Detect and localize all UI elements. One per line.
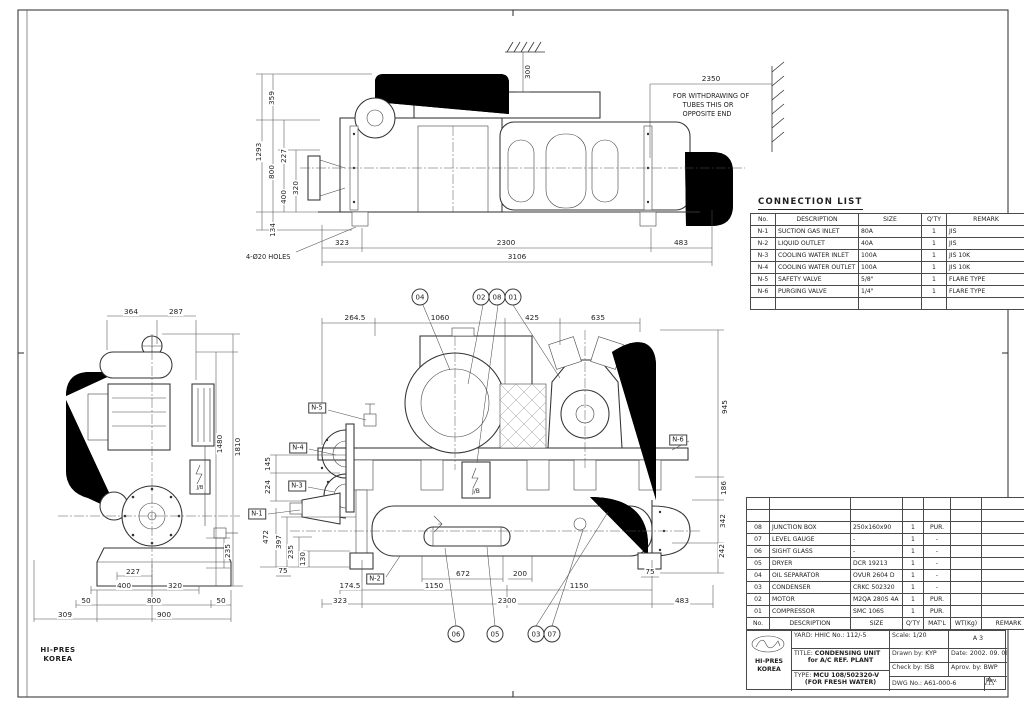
table-cell: 1 [903, 546, 924, 558]
date-value: 2002. 09. 09 [970, 650, 1007, 657]
table-cell: 01 [747, 606, 770, 618]
table-cell: - [851, 546, 903, 558]
table-cell: JIS [947, 238, 1024, 250]
drawn-value: KYP [925, 650, 936, 657]
table-cell: 06 [747, 546, 770, 558]
company-stamp-line2: KOREA [40, 655, 75, 664]
ceiling-hatch-icon [505, 42, 545, 52]
table-cell [951, 546, 982, 558]
logo-cell: HI-PRES KOREA [747, 631, 791, 691]
junction-box-label-side: J/B [196, 485, 205, 491]
table-cell: REMARK [982, 618, 1024, 630]
table-cell: M2QA 280S 4A [851, 594, 903, 606]
table-cell: DESCRIPTION [776, 214, 859, 226]
table-cell [851, 510, 903, 522]
title-block: HI-PRES KOREA YARD: HHIC No.: 112/-5 TIT… [746, 630, 1006, 690]
drawing-sheet: 1293359800227400320134300235032323004833… [0, 0, 1024, 707]
rev-triangle-icon [985, 677, 994, 685]
table-cell: - [851, 534, 903, 546]
table-cell [947, 298, 1024, 310]
dwg-no-label: DWG No.: [892, 680, 922, 687]
table-cell: OIL SEPARATOR [770, 570, 851, 582]
table-cell: PUR. [924, 522, 951, 534]
table-cell: FLARE TYPE [947, 286, 1024, 298]
yard-cell: YARD: HHIC No.: 112/-5 [791, 631, 889, 648]
date-label: Date: [951, 650, 968, 657]
scale-cell: Scale: 1/20 [889, 631, 948, 648]
sheet-size-cell: A 3 [948, 631, 1007, 648]
front-view [290, 328, 700, 569]
scale-value: 1/20 [913, 632, 927, 639]
yard-value: HHIC No.: 112/-5 [815, 632, 867, 639]
table-cell [982, 534, 1024, 546]
check-cell: Check by: ISB [889, 662, 948, 676]
date-cell: Date: 2002. 09. 09 [948, 648, 1007, 662]
dwg-no-value: A61-000-6 [924, 680, 956, 687]
table-cell [982, 558, 1024, 570]
approve-value: BWP [984, 664, 998, 671]
company-stamp: HI-PRES KOREA [40, 646, 75, 664]
table-row: N-5SAFETY VALVE5/8"1FLARE TYPE [751, 274, 1024, 286]
table-row: N-2LIQUID OUTLET40A1JIS [751, 238, 1024, 250]
yard-label: YARD: [794, 632, 813, 639]
drawing-title-line2: for A/C REF. PLANT [794, 657, 887, 664]
table-cell: FLARE TYPE [947, 274, 1024, 286]
table-cell: No. [751, 214, 776, 226]
table-cell: OVUR 2604 D [851, 570, 903, 582]
table-cell: 1 [922, 250, 947, 262]
scale-label: Scale: [892, 632, 911, 639]
table-cell [982, 510, 1024, 522]
table-cell: N-4 [751, 262, 776, 274]
table-cell: CRKC 502320 [851, 582, 903, 594]
table-cell [903, 498, 924, 510]
table-row: N-1SUCTION GAS INLET80A1JIS [751, 226, 1024, 238]
table-row: 05DRYERDCR 192131- [747, 558, 1024, 570]
table-cell: MAT'L [924, 618, 951, 630]
table-cell: SIZE [851, 618, 903, 630]
table-cell [922, 298, 947, 310]
table-cell: 1/4" [859, 286, 922, 298]
table-cell: COMPRESSOR [770, 606, 851, 618]
table-cell: N-3 [751, 250, 776, 262]
table-cell: 07 [747, 534, 770, 546]
table-cell [951, 522, 982, 534]
table-cell [859, 298, 922, 310]
table-cell: 80A [859, 226, 922, 238]
table-row [747, 498, 1024, 510]
table-cell: 1 [922, 226, 947, 238]
table-cell: SMC 106S [851, 606, 903, 618]
table-cell: 1 [903, 594, 924, 606]
table-cell [951, 594, 982, 606]
table-cell: DESCRIPTION [770, 618, 851, 630]
table-cell: 04 [747, 570, 770, 582]
approve-cell: Aprov. by: BWP [948, 662, 1007, 676]
table-cell: Q'TY [922, 214, 947, 226]
wall-hatch-icon [772, 62, 784, 152]
table-cell: COOLING WATER OUTLET [776, 262, 859, 274]
drawing-title-line1: CONDENSING UNIT [815, 650, 880, 657]
connection-list-table: No.DESCRIPTIONSIZEQ'TYREMARKN-1SUCTION G… [750, 213, 1024, 310]
table-row: 08JUNCTION BOX250x160x901PUR. [747, 522, 1024, 534]
holes-note: 4-Ø20 HOLES [246, 253, 290, 261]
table-cell [951, 534, 982, 546]
table-cell: REMARK [947, 214, 1024, 226]
table-cell: N-2 [751, 238, 776, 250]
table-cell: LEVEL GAUGE [770, 534, 851, 546]
table-cell: PUR. [924, 594, 951, 606]
table-cell: 03 [747, 582, 770, 594]
table-cell [951, 606, 982, 618]
table-cell: - [924, 558, 951, 570]
withdraw-note-line1: FOR WITHDRAWING OF [673, 92, 749, 101]
table-cell: JIS 10K [947, 250, 1024, 262]
table-cell [951, 582, 982, 594]
table-cell: PURGING VALVE [776, 286, 859, 298]
table-row: 06SIGHT GLASS-1- [747, 546, 1024, 558]
table-cell: DCR 19213 [851, 558, 903, 570]
title-cell: TITLE: CONDENSING UNIT for A/C REF. PLAN… [791, 648, 889, 670]
table-cell: 1 [903, 522, 924, 534]
table-cell [776, 298, 859, 310]
table-cell: - [924, 534, 951, 546]
table-cell: SIZE [859, 214, 922, 226]
table-cell: DRYER [770, 558, 851, 570]
table-cell: 1 [903, 534, 924, 546]
table-cell [924, 498, 951, 510]
table-cell: 1 [922, 262, 947, 274]
drawn-label: Drawn by: [892, 650, 923, 657]
rev-cell: Rev. [984, 676, 1007, 691]
table-cell: JUNCTION BOX [770, 522, 851, 534]
drawn-cell: Drawn by: KYP [889, 648, 948, 662]
table-cell [924, 510, 951, 522]
withdraw-note-line3: OPPOSITE END [683, 110, 732, 119]
table-cell: CONDENSER [770, 582, 851, 594]
table-cell [982, 594, 1024, 606]
company-name: HI-PRES [749, 658, 789, 666]
table-cell: - [924, 582, 951, 594]
company-stamp-line1: HI-PRES [40, 646, 75, 655]
type-value-line2: (FOR FRESH WATER) [794, 679, 887, 686]
check-label: Check by: [892, 664, 922, 671]
table-row: N-6PURGING VALVE1/4"1FLARE TYPE [751, 286, 1024, 298]
table-cell: 1 [903, 570, 924, 582]
table-cell [982, 522, 1024, 534]
table-cell: 1 [922, 274, 947, 286]
table-cell [982, 498, 1024, 510]
table-cell [951, 510, 982, 522]
table-cell: 05 [747, 558, 770, 570]
withdraw-note-line2: TUBES THIS OR [683, 101, 734, 110]
table-cell: 100A [859, 262, 922, 274]
table-row: N-3COOLING WATER INLET100A1JIS 10K [751, 250, 1024, 262]
table-cell: LIQUID OUTLET [776, 238, 859, 250]
table-cell: No. [747, 618, 770, 630]
table-cell: 02 [747, 594, 770, 606]
table-cell [747, 510, 770, 522]
table-cell: COOLING WATER INLET [776, 250, 859, 262]
table-cell: PUR. [924, 606, 951, 618]
table-cell: 40A [859, 238, 922, 250]
table-row: 02MOTORM2QA 280S 4A1PUR. [747, 594, 1024, 606]
table-cell: 250x160x90 [851, 522, 903, 534]
dwg-no-cell: DWG No.: A61-000-6 [889, 676, 984, 691]
table-cell: 5/8" [859, 274, 922, 286]
company-name: KOREA [749, 666, 789, 674]
table-cell: 08 [747, 522, 770, 534]
table-cell [770, 498, 851, 510]
table-cell: SIGHT GLASS [770, 546, 851, 558]
type-cell: TYPE: MCU 108/502320-V (FOR FRESH WATER) [791, 670, 889, 691]
approve-label: Aprov. by: [951, 664, 982, 671]
table-cell [951, 558, 982, 570]
table-cell [751, 298, 776, 310]
table-cell [951, 498, 982, 510]
table-row [747, 510, 1024, 522]
table-row [751, 298, 1024, 310]
table-row: 01COMPRESSORSMC 106S1PUR. [747, 606, 1024, 618]
table-cell: N-6 [751, 286, 776, 298]
table-cell [851, 498, 903, 510]
table-row: 03CONDENSERCRKC 5023201- [747, 582, 1024, 594]
table-cell: MOTOR [770, 594, 851, 606]
parts-list-table: 08JUNCTION BOX250x160x901PUR.07LEVEL GAU… [746, 497, 1024, 630]
table-header-row: No.DESCRIPTIONSIZEQ'TYREMARK [751, 214, 1024, 226]
type-value-line1: MCU 108/502320-V [813, 672, 879, 679]
table-cell: 1 [903, 582, 924, 594]
table-header-row: No.DESCRIPTIONSIZEQ'TYMAT'LWT(Kg)REMARK [747, 618, 1024, 630]
table-cell: WT(Kg) [951, 618, 982, 630]
table-cell [770, 510, 851, 522]
table-row: 07LEVEL GAUGE-1- [747, 534, 1024, 546]
table-cell: Q'TY [903, 618, 924, 630]
table-cell: JIS 10K [947, 262, 1024, 274]
side-view [58, 334, 240, 594]
table-cell: 1 [922, 286, 947, 298]
type-label: TYPE: [794, 672, 811, 679]
table-cell [951, 570, 982, 582]
table-cell: SAFETY VALVE [776, 274, 859, 286]
table-cell [903, 510, 924, 522]
table-row: 04OIL SEPARATOROVUR 2604 D1- [747, 570, 1024, 582]
table-cell [982, 582, 1024, 594]
table-cell [982, 606, 1024, 618]
title-label: TITLE: [794, 650, 813, 657]
table-cell [982, 546, 1024, 558]
check-value: ISB [924, 664, 934, 671]
table-cell: 1 [903, 606, 924, 618]
company-logo-icon [749, 632, 787, 656]
table-cell: N-1 [751, 226, 776, 238]
table-cell: 1 [903, 558, 924, 570]
sheet-size: A 3 [973, 635, 983, 642]
table-cell: JIS [947, 226, 1024, 238]
table-cell [747, 498, 770, 510]
table-cell: - [924, 546, 951, 558]
table-cell: N-5 [751, 274, 776, 286]
table-cell: 1 [922, 238, 947, 250]
table-row: N-4COOLING WATER OUTLET100A1JIS 10K [751, 262, 1024, 274]
table-cell: - [924, 570, 951, 582]
table-cell: SUCTION GAS INLET [776, 226, 859, 238]
junction-box-label-front: J/B [471, 489, 481, 495]
table-cell: 100A [859, 250, 922, 262]
connection-list-title: CONNECTION LIST [758, 197, 863, 210]
table-cell [982, 570, 1024, 582]
